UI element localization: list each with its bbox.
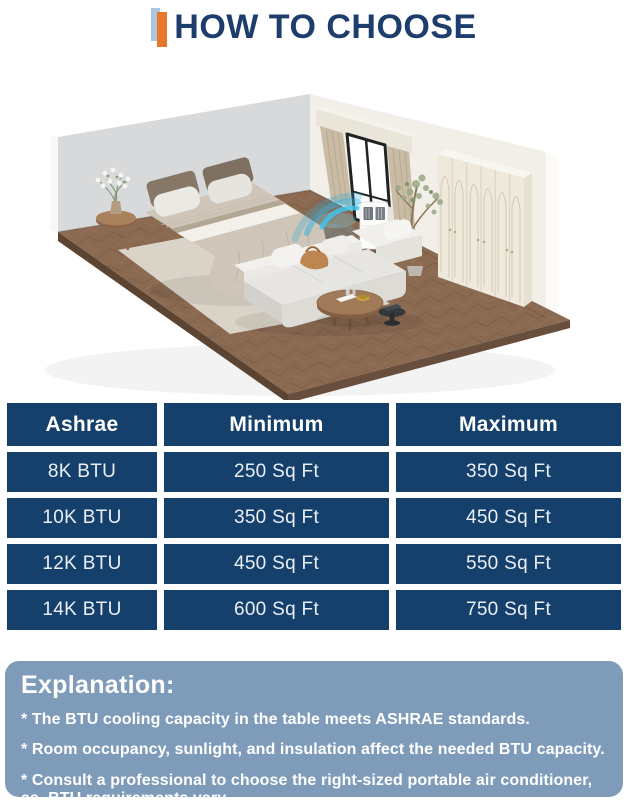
title-accent-bar xyxy=(151,7,169,47)
table-cell: 10K BTU xyxy=(7,498,157,538)
glass xyxy=(346,286,350,295)
btu-table: Ashrae Minimum Maximum 8K BTU 250 Sq Ft … xyxy=(7,403,621,630)
table-cell: 350 Sq Ft xyxy=(396,452,621,492)
explanation-panel: Explanation: * The BTU cooling capacity … xyxy=(5,661,623,797)
table-cell: 8K BTU xyxy=(7,452,157,492)
table-cell: 450 Sq Ft xyxy=(396,498,621,538)
vent-grille xyxy=(364,207,374,220)
page-title: HOW TO CHOOSE xyxy=(174,8,476,47)
explanation-title: Explanation: xyxy=(21,671,609,700)
vase xyxy=(353,283,356,295)
table-cell: 550 Sq Ft xyxy=(396,544,621,584)
explanation-bullet: * Consult a professional to choose the r… xyxy=(21,772,609,809)
table-cell: 750 Sq Ft xyxy=(396,590,621,630)
explanation-bullet: * The BTU cooling capacity in the table … xyxy=(21,711,609,729)
infographic-page: { "header": { "title": "HOW TO CHOOSE", … xyxy=(0,0,628,800)
table-cell: 12K BTU xyxy=(7,544,157,584)
vase xyxy=(110,201,122,214)
table-cell: 350 Sq Ft xyxy=(164,498,389,538)
table-cell: 250 Sq Ft xyxy=(164,452,389,492)
accent-orange-bar xyxy=(157,12,167,47)
bedroom-scene-svg xyxy=(0,80,628,400)
explanation-bullet: * Room occupancy, sunlight, and insulati… xyxy=(21,741,609,759)
vent-grille xyxy=(376,207,386,220)
table-header-ashrae: Ashrae xyxy=(7,403,157,446)
table-cell: 450 Sq Ft xyxy=(164,544,389,584)
plant-pot xyxy=(407,266,423,276)
table-cell: 14K BTU xyxy=(7,590,157,630)
table-header-minimum: Minimum xyxy=(164,403,389,446)
table-cell: 600 Sq Ft xyxy=(164,590,389,630)
table-header-maximum: Maximum xyxy=(396,403,621,446)
header: HOW TO CHOOSE xyxy=(0,2,628,52)
room-illustration xyxy=(0,80,628,400)
